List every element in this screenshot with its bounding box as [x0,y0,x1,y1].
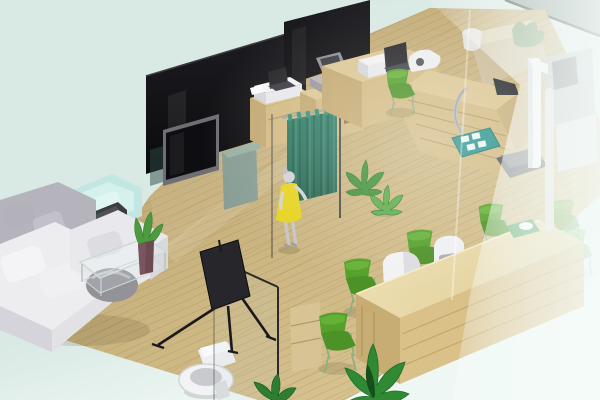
wood-shelf [290,302,322,372]
clinic-isometric-render [0,0,600,400]
